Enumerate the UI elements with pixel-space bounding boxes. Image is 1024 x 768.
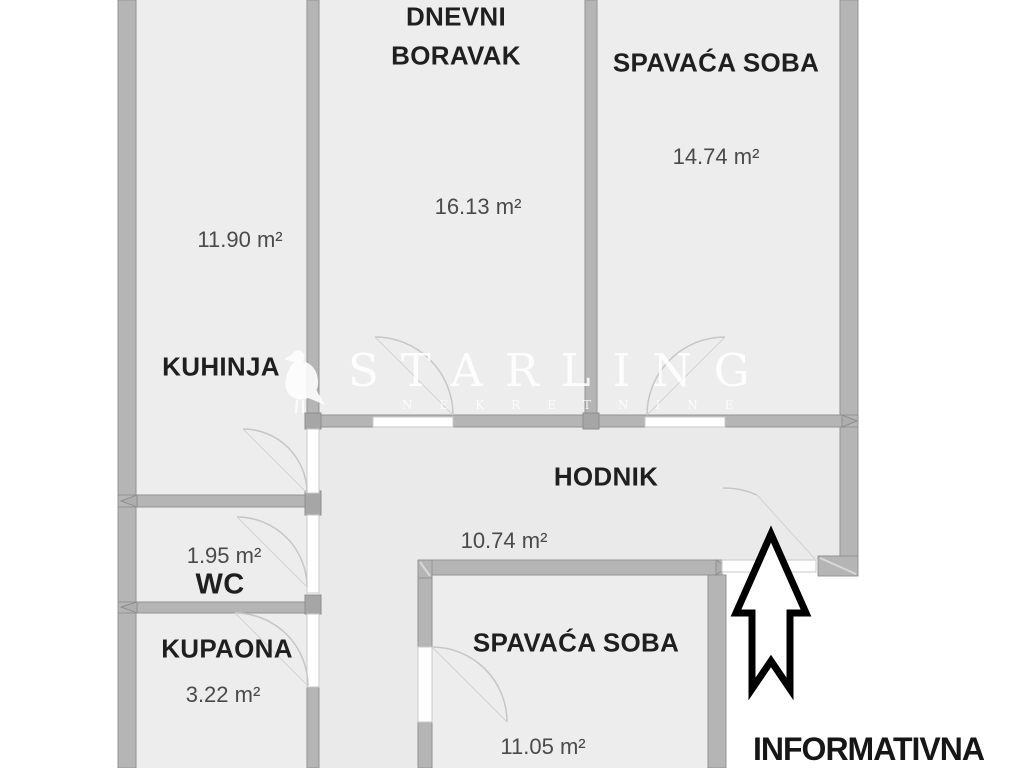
up-arrow-icon bbox=[736, 534, 806, 689]
floorplan-image: STARLING NEKRETNINE DNEVNI BORAVAK 16.13… bbox=[0, 0, 1024, 768]
entrance-arrow-overlay bbox=[0, 0, 1024, 768]
